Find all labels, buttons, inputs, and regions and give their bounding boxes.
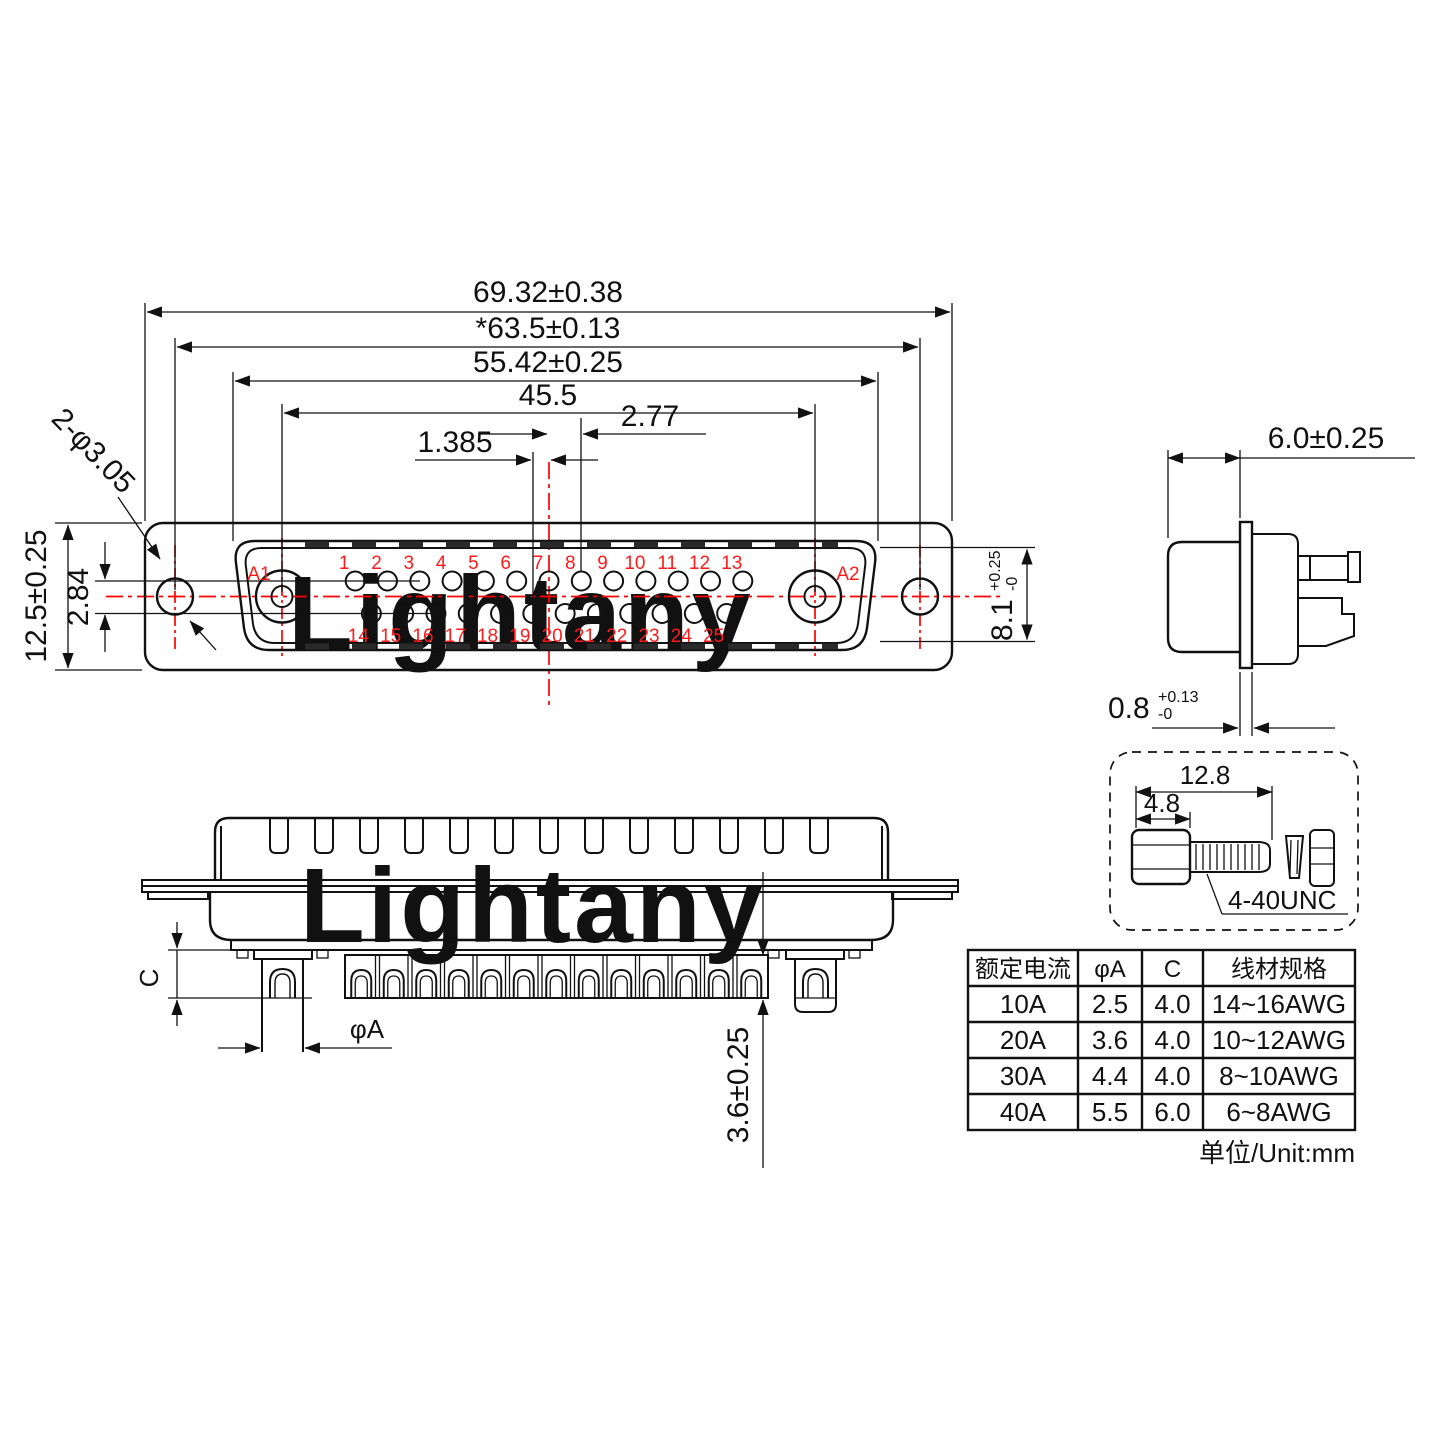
dim-mount-holes: 2-φ3.05 [45,402,141,500]
power-cup-right [786,950,844,1012]
pin-number: 12 [689,553,710,574]
pin-number: 15 [380,626,401,647]
solder-cup-arch-inner [518,976,530,998]
table-cell: 8~10AWG [1219,1061,1339,1091]
table-cell: 4.0 [1154,989,1190,1019]
pin-number: 10 [624,553,645,574]
dim-flange-tol-plus: +0.13 [1158,689,1199,706]
screw-thread-spec: 4-40UNC [1228,885,1336,915]
side-shell [1168,542,1240,652]
shell-slot [270,819,288,853]
pin-number: 18 [477,626,498,647]
table-header: C [1164,956,1181,983]
technical-drawing-svg: Lightany Lightany A1 A2 1234567891011121… [0,0,1440,1440]
dim-slot-height-base: 8.1 [986,599,1019,641]
table-cell: 6.0 [1154,1097,1190,1127]
screw-threads [1196,844,1259,870]
solder-cup-arch [676,970,696,998]
dim-half-pitch: 1.385 [417,426,492,459]
dim-phi-a: φA [350,1014,385,1044]
dim-c: C [134,969,164,988]
table-cell: 5.5 [1092,1097,1128,1127]
table-texts: 额定电流φAC线材规格10A2.54.014~16AWG20A3.64.010~… [975,956,1346,1127]
dim-flange-base: 0.8 [1108,692,1150,725]
solder-cup-arch-inner [745,976,757,998]
solder-cup-arch [351,970,371,998]
pin-number: 25 [703,626,724,647]
dim-screw-hex: 4.8 [1144,788,1180,818]
table-cell: 40A [1000,1097,1047,1127]
solder-cup-arch-inner [388,976,400,998]
table-cell: 6~8AWG [1226,1097,1331,1127]
pin-number: 16 [412,626,433,647]
dim-slot-height-tol-minus: -0 [1004,577,1021,591]
watermark-text: Lightany [300,847,766,965]
solder-cup-arch [741,970,761,998]
table-cell: 14~16AWG [1212,989,1346,1019]
pin-number: 14 [348,626,370,647]
solder-cup-arch [384,970,404,998]
pin-number: 4 [436,553,447,574]
solder-cup-arch-inner [485,976,497,998]
dim-slot-height-tol-plus: +0.25 [987,550,1004,591]
table-cell: 30A [1000,1061,1047,1091]
pin-number: 21 [574,626,595,647]
dim-screw-total: 12.8 [1180,760,1231,790]
solder-cup-arch-inner [550,976,562,998]
side-flange [1240,522,1252,668]
watermark-bottom: Lightany [300,847,766,965]
table-cell: 10~12AWG [1212,1025,1346,1055]
shell-slot [810,819,828,853]
table-cell: 2.5 [1092,989,1128,1019]
pin-number: 17 [445,626,466,647]
dim-row-offset: 2.84 [62,568,95,626]
table-header: φA [1094,956,1126,983]
front-view: A1 A2 12345678910111213 1415161718192021… [20,276,1035,706]
solder-cup-arch [611,970,631,998]
solder-cup-arch-inner [713,976,725,998]
pin-label-a2: A2 [836,564,859,585]
dim-flange-thickness: 0.8 +0.13 -0 [1108,689,1199,725]
solder-cup-arch-inner [615,976,627,998]
pin-number: 3 [404,553,415,574]
pin-number: 8 [565,553,576,574]
unit-note: 单位/Unit:mm [1199,1138,1355,1168]
solder-cup-arch [514,970,534,998]
dim-slot-height: 8.1 +0.25 -0 [986,550,1021,641]
shell-slot [765,819,783,853]
pin-number: 11 [657,553,677,574]
side-insulator [1252,534,1298,664]
table-cell: 3.6 [1092,1025,1128,1055]
solder-cup-arch-inner [453,976,465,998]
pin-number: 7 [533,553,544,574]
dim-depth: 6.0±0.25 [1268,422,1385,455]
side-view: 6.0±0.25 0.8 +0.13 -0 [1108,422,1415,736]
table-cell: 4.0 [1154,1061,1190,1091]
screw-small-parts [1286,830,1334,886]
dim-slot-width: 55.42±0.25 [473,346,623,379]
table-header: 线材规格 [1231,956,1327,983]
pin-number: 2 [371,553,382,574]
dim-tail-length: 3.6±0.25 [722,1027,755,1144]
solder-cup-arch [416,970,436,998]
side-solder-cup-profile [1298,552,1360,646]
solder-cup-arch [546,970,566,998]
table-header: 额定电流 [975,956,1071,983]
solder-cup-arch [644,970,664,998]
pin-number: 13 [721,553,742,574]
table-cell: 4.0 [1154,1025,1190,1055]
pin-number: 5 [468,553,479,574]
pin-number: 1 [339,553,350,574]
solder-cup-arch-inner [583,976,595,998]
power-cup-left [254,950,312,1052]
table-cell: 10A [1000,989,1047,1019]
pin-number: 19 [509,626,530,647]
drawing-sheet: Lightany Lightany A1 A2 1234567891011121… [0,0,1440,1440]
solder-cup-arch-inner [420,976,432,998]
table-cell: 4.4 [1092,1061,1128,1091]
screw-shaft [1190,842,1270,872]
pin-label-a1: A1 [247,564,270,585]
solder-cup-arch [449,970,469,998]
dim-power-span: 45.5 [519,379,577,412]
pin-number: 23 [638,626,659,647]
pin-number: 24 [671,626,693,647]
solder-cup-arch-inner [680,976,692,998]
pin-number: 22 [606,626,627,647]
dim-body-height: 12.5±0.25 [20,529,53,662]
dim-pin-pitch: 2.77 [621,400,679,433]
solder-cup-arch-inner [355,976,367,998]
sleeve-part [1310,830,1334,886]
solder-cup-arch [709,970,729,998]
pin-number: 9 [597,553,608,574]
pin-number: 6 [500,553,511,574]
solder-cup-arch-inner [648,976,660,998]
screw-detail: 12.8 4.8 4-40UNC [1110,752,1358,930]
solder-cup-arch [481,970,501,998]
spec-table: 额定电流φAC线材规格10A2.54.014~16AWG20A3.64.010~… [968,950,1355,1168]
dim-mount-span: *63.5±0.13 [476,312,621,345]
dim-flange-tol-minus: -0 [1158,706,1172,723]
table-cell: 20A [1000,1025,1047,1055]
screw-hex-body [1132,830,1190,884]
wedge-part [1286,836,1303,878]
dim-overall-width: 69.32±0.38 [473,276,623,309]
pin-number: 20 [542,626,563,647]
solder-cup-arch [579,970,599,998]
